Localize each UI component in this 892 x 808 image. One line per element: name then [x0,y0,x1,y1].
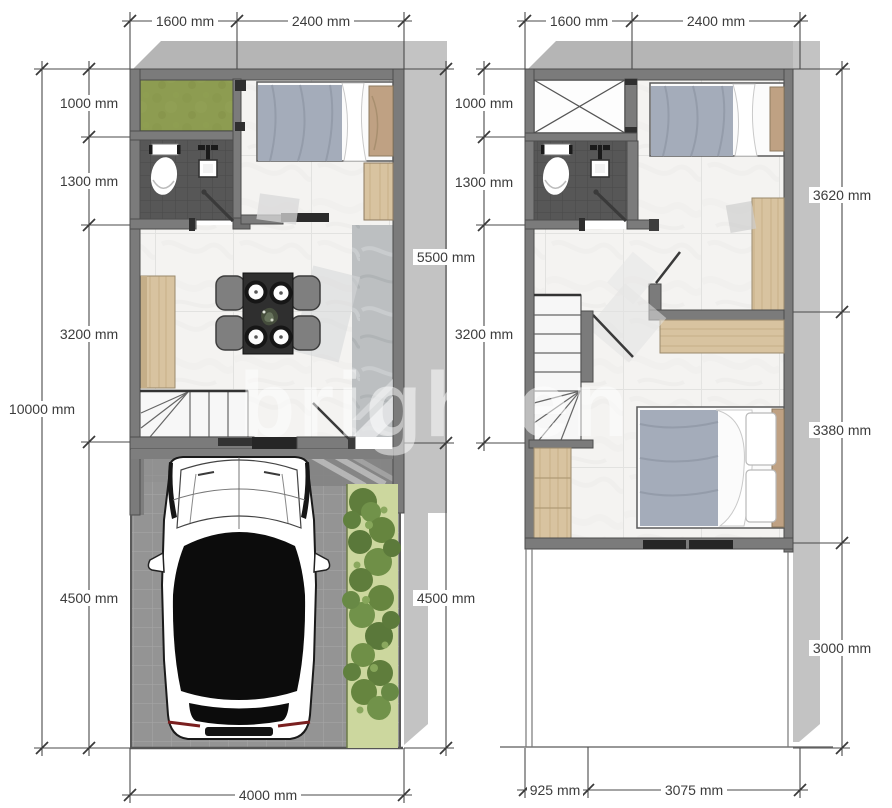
svg-text:brighten: brighten [239,354,631,456]
svg-text:3000 mm: 3000 mm [813,640,871,656]
svg-text:1300 mm: 1300 mm [60,173,118,189]
svg-text:1600 mm: 1600 mm [156,13,214,29]
svg-text:2400 mm: 2400 mm [292,13,350,29]
svg-text:3380 mm: 3380 mm [813,422,871,438]
svg-text:10000 mm: 10000 mm [9,401,75,417]
svg-text:4000 mm: 4000 mm [239,787,297,803]
svg-text:1000 mm: 1000 mm [455,95,513,111]
svg-text:5500 mm: 5500 mm [417,249,475,265]
svg-text:1000 mm: 1000 mm [60,95,118,111]
svg-text:3200 mm: 3200 mm [455,326,513,342]
svg-text:1300 mm: 1300 mm [455,174,513,190]
svg-text:4500 mm: 4500 mm [60,590,118,606]
svg-text:1600 mm: 1600 mm [550,13,608,29]
svg-text:3620 mm: 3620 mm [813,187,871,203]
svg-text:3200 mm: 3200 mm [60,326,118,342]
svg-text:2400 mm: 2400 mm [687,13,745,29]
svg-text:3075 mm: 3075 mm [665,782,723,798]
svg-text:925 mm: 925 mm [530,782,581,798]
svg-text:4500 mm: 4500 mm [417,590,475,606]
